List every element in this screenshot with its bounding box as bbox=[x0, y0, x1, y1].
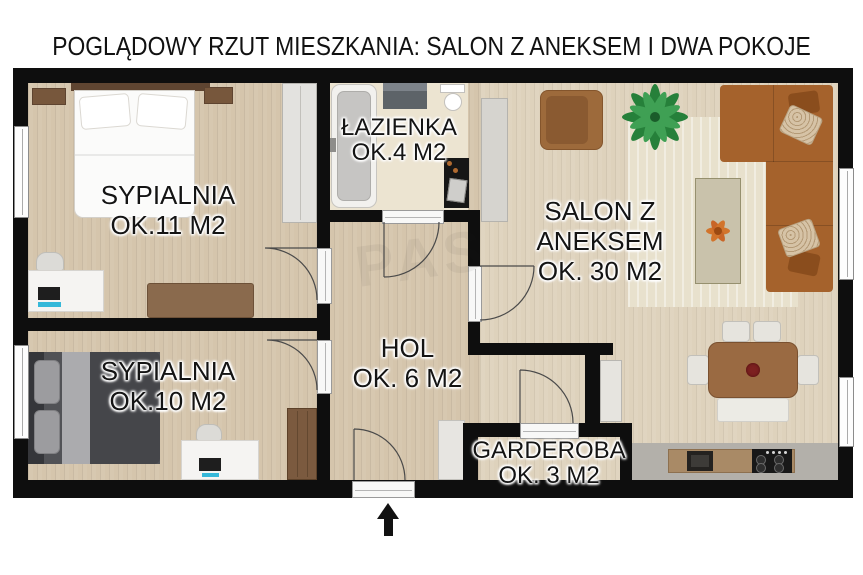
dresser-icon bbox=[147, 283, 254, 318]
window bbox=[839, 377, 854, 447]
desk-chair-icon bbox=[196, 424, 222, 441]
nightstand-icon bbox=[32, 88, 66, 105]
keyboard-icon bbox=[38, 302, 61, 307]
laptop-icon bbox=[199, 458, 221, 471]
washer-drum bbox=[446, 178, 467, 203]
room-name: ŁAZIENKA bbox=[330, 115, 468, 140]
sofa-seam bbox=[766, 161, 833, 162]
dining-chair-icon bbox=[722, 321, 750, 342]
entrance-arrow-icon bbox=[366, 503, 410, 539]
desk-chair-icon bbox=[36, 252, 64, 271]
room-area: OK.4 M2 bbox=[330, 140, 468, 165]
room-area: OK. 3 M2 bbox=[465, 463, 633, 488]
room-label-wardrobe: GARDEROBA OK. 3 M2 bbox=[465, 438, 633, 488]
room-label-hall: HOL OK. 6 M2 bbox=[330, 333, 485, 393]
palm-plant-icon bbox=[618, 80, 692, 152]
laptop-icon bbox=[38, 287, 60, 300]
room-name: GARDEROBA bbox=[465, 438, 633, 463]
floor-plan: SYPIALNIA OK.11 M2 ŁAZIENKA OK.4 M2 SALO… bbox=[13, 68, 853, 498]
toilet-icon bbox=[440, 84, 465, 93]
vanity-sink-icon bbox=[383, 83, 427, 109]
burner-icon bbox=[774, 463, 784, 473]
sofa-seam bbox=[773, 85, 774, 162]
burner-icon bbox=[756, 463, 766, 473]
window bbox=[14, 345, 29, 439]
room-name: ANEKSEM bbox=[490, 226, 710, 256]
knob-icon bbox=[778, 451, 781, 454]
room-area: OK.10 M2 bbox=[43, 386, 293, 416]
door-threshold-living bbox=[468, 266, 482, 322]
keyboard-icon bbox=[202, 473, 219, 477]
room-name: HOL bbox=[330, 333, 485, 363]
room-label-bedroom-large: SYPIALNIA OK.11 M2 bbox=[43, 180, 293, 240]
knob-icon bbox=[784, 451, 787, 454]
pillow-icon bbox=[34, 410, 60, 454]
bench-icon bbox=[717, 398, 789, 422]
room-label-bathroom: ŁAZIENKA OK.4 M2 bbox=[330, 115, 468, 165]
door-threshold-bathroom bbox=[382, 210, 444, 224]
blanket-fold bbox=[75, 154, 194, 156]
window bbox=[14, 126, 29, 218]
armchair-icon bbox=[540, 90, 603, 150]
wardrobe-icon bbox=[287, 408, 317, 480]
dining-chair-icon bbox=[753, 321, 781, 342]
decor-dot bbox=[453, 168, 458, 173]
knob-icon bbox=[766, 451, 769, 454]
plan-title: POGLĄDOWY RZUT MIESZKANIA: SALON Z ANEKS… bbox=[52, 33, 811, 59]
toilet-bowl-icon bbox=[444, 93, 462, 111]
knob-icon bbox=[772, 451, 775, 454]
door-threshold-entrance bbox=[352, 481, 415, 498]
oven-icon bbox=[687, 451, 713, 471]
washing-machine-icon bbox=[444, 158, 469, 208]
flowers-icon bbox=[746, 363, 760, 377]
pillow-icon bbox=[136, 93, 189, 130]
window bbox=[839, 168, 854, 280]
room-name: SYPIALNIA bbox=[43, 356, 293, 386]
room-area: OK.11 M2 bbox=[43, 210, 293, 240]
pillow-icon bbox=[79, 93, 132, 130]
room-name: SYPIALNIA bbox=[43, 180, 293, 210]
nightstand-icon bbox=[204, 87, 233, 104]
arrow-head bbox=[377, 503, 399, 519]
arrow-stem bbox=[384, 518, 393, 536]
room-area: OK. 6 M2 bbox=[330, 363, 485, 393]
wall-bedrooms-horizontal bbox=[28, 318, 317, 331]
cooktop-icon bbox=[752, 449, 792, 473]
dining-chair-icon bbox=[687, 355, 709, 385]
room-area: OK. 30 M2 bbox=[490, 256, 710, 286]
hall-cabinet-icon bbox=[438, 420, 465, 480]
dining-chair-icon bbox=[797, 355, 819, 385]
room-name: SALON Z bbox=[490, 196, 710, 226]
armchair-seat bbox=[546, 96, 588, 144]
fridge-icon bbox=[600, 360, 622, 422]
room-label-living-room: SALON Z ANEKSEM OK. 30 M2 bbox=[490, 196, 710, 286]
room-label-bedroom-small: SYPIALNIA OK.10 M2 bbox=[43, 356, 293, 416]
door-threshold-bedroom-large bbox=[317, 248, 332, 304]
